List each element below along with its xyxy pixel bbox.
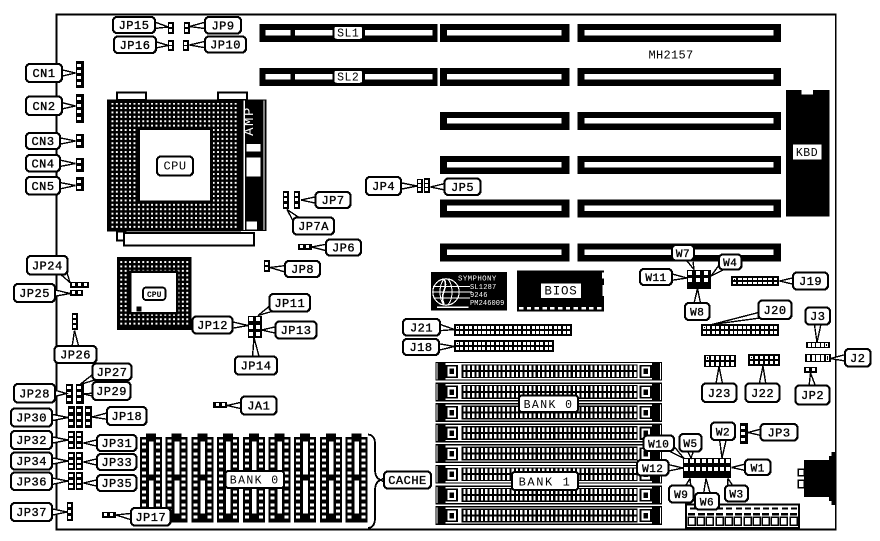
svg-text:JP13: JP13 <box>281 324 312 338</box>
svg-text:W12: W12 <box>642 464 663 476</box>
svg-text:JP26: JP26 <box>60 349 91 363</box>
svg-text:JP16: JP16 <box>120 39 151 53</box>
svg-text:JP34: JP34 <box>16 455 47 469</box>
svg-text:JP30: JP30 <box>16 412 47 426</box>
svg-text:CN3: CN3 <box>31 135 54 149</box>
svg-text:CN2: CN2 <box>32 100 55 114</box>
svg-text:JP29: JP29 <box>96 385 127 399</box>
svg-text:SL2: SL2 <box>337 72 359 85</box>
svg-text:JP17: JP17 <box>135 511 166 525</box>
svg-text:BIOS: BIOS <box>544 285 577 299</box>
svg-text:JP7A: JP7A <box>298 220 329 234</box>
svg-text:CPU: CPU <box>147 291 162 300</box>
svg-text:CACHE: CACHE <box>388 474 427 488</box>
svg-text:SL1: SL1 <box>337 28 359 41</box>
svg-text:JP15: JP15 <box>119 19 150 33</box>
svg-text:J21: J21 <box>410 321 433 335</box>
svg-text:SYMPHONY: SYMPHONY <box>458 276 497 284</box>
svg-text:J2: J2 <box>850 352 865 366</box>
svg-text:JP7: JP7 <box>321 194 344 208</box>
svg-text:JP31: JP31 <box>101 437 132 451</box>
svg-text:JP9: JP9 <box>211 19 234 33</box>
svg-text:JP28: JP28 <box>19 387 50 401</box>
svg-text:JP25: JP25 <box>19 287 50 301</box>
svg-text:MH2157: MH2157 <box>648 49 693 63</box>
svg-text:JP11: JP11 <box>274 297 305 311</box>
svg-text:PM246009: PM246009 <box>470 300 504 308</box>
svg-text:AMP: AMP <box>242 106 258 136</box>
svg-text:JP2: JP2 <box>801 389 824 403</box>
svg-text:JP24: JP24 <box>32 259 63 273</box>
svg-text:J3: J3 <box>810 310 825 324</box>
svg-text:JP12: JP12 <box>197 319 228 333</box>
svg-text:JP4: JP4 <box>372 180 395 194</box>
svg-text:BANK 1: BANK 1 <box>519 475 572 489</box>
svg-text:CN4: CN4 <box>31 157 54 171</box>
svg-text:J22: J22 <box>751 387 774 401</box>
svg-text:W3: W3 <box>729 490 743 502</box>
svg-text:JP6: JP6 <box>332 242 355 256</box>
svg-text:BANK 0: BANK 0 <box>524 399 574 412</box>
svg-text:W10: W10 <box>648 439 669 451</box>
svg-text:JP27: JP27 <box>97 366 128 380</box>
svg-text:JP35: JP35 <box>101 477 132 491</box>
svg-text:W1: W1 <box>751 463 765 475</box>
svg-text:JP3: JP3 <box>767 426 790 440</box>
svg-text:W9: W9 <box>674 490 688 502</box>
svg-text:KBD: KBD <box>796 147 818 160</box>
svg-text:CN5: CN5 <box>31 180 54 194</box>
svg-text:JP33: JP33 <box>101 456 132 470</box>
svg-text:J20: J20 <box>763 304 786 318</box>
svg-text:JP32: JP32 <box>16 434 47 448</box>
svg-text:W2: W2 <box>716 427 730 439</box>
svg-text:9246: 9246 <box>470 292 488 300</box>
svg-text:JP37: JP37 <box>16 506 47 520</box>
svg-text:W5: W5 <box>683 439 697 451</box>
svg-text:W4: W4 <box>723 258 737 270</box>
svg-text:CN1: CN1 <box>32 67 55 81</box>
svg-text:CPU: CPU <box>163 160 186 174</box>
svg-text:J18: J18 <box>409 341 432 355</box>
svg-text:J23: J23 <box>708 387 731 401</box>
svg-text:JP36: JP36 <box>16 475 47 489</box>
svg-text:JP5: JP5 <box>451 181 474 195</box>
svg-text:BANK 0: BANK 0 <box>230 475 280 488</box>
svg-text:SL1287: SL1287 <box>470 284 496 292</box>
svg-text:W6: W6 <box>700 497 714 509</box>
svg-text:W11: W11 <box>645 273 666 285</box>
svg-text:JA1: JA1 <box>247 400 270 414</box>
svg-text:J19: J19 <box>799 275 822 289</box>
svg-text:JP14: JP14 <box>241 360 272 374</box>
svg-text:W8: W8 <box>690 308 704 320</box>
svg-text:W7: W7 <box>676 249 690 261</box>
svg-text:JP10: JP10 <box>210 39 241 53</box>
svg-text:JP18: JP18 <box>111 410 142 424</box>
svg-text:JP8: JP8 <box>291 263 314 277</box>
